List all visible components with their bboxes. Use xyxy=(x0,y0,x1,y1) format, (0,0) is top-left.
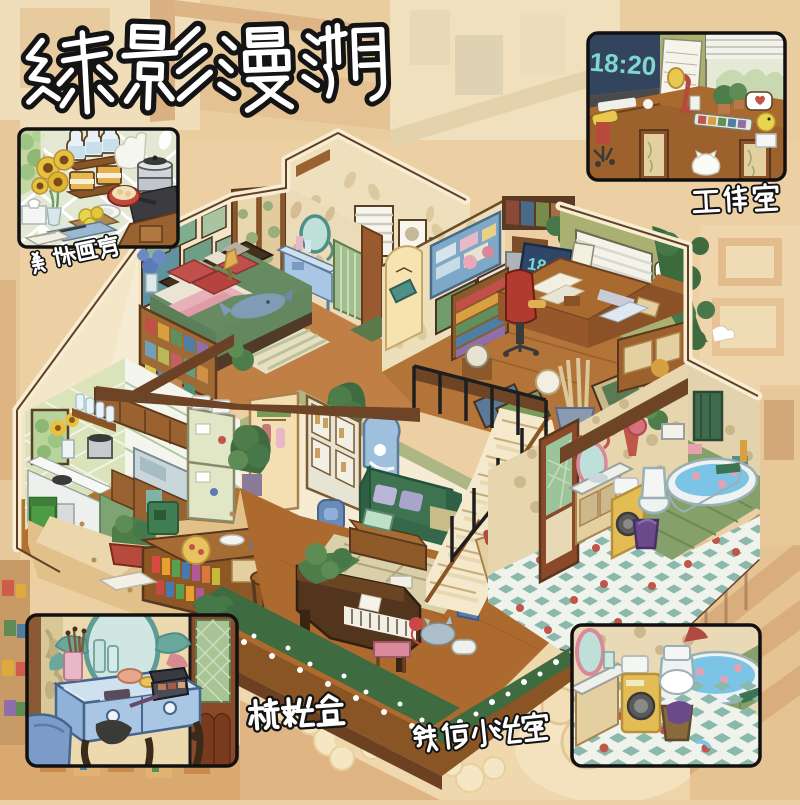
svg-text:18:20: 18:20 xyxy=(589,47,657,82)
